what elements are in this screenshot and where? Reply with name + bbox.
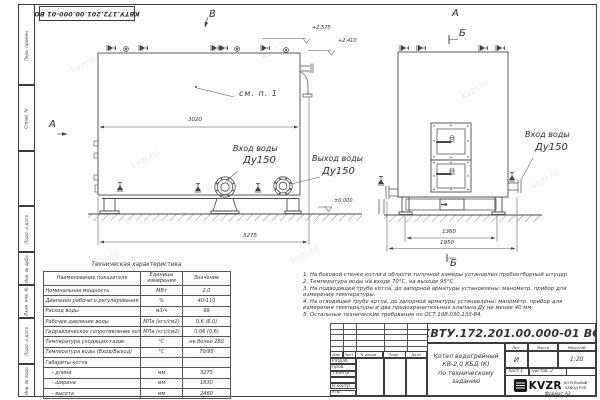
mass-value [528, 351, 558, 368]
spec-row: Рабочее давление водыМПа (кгс/см2)0,6 (6… [44, 316, 231, 326]
rev-col-list: Лист [343, 351, 356, 358]
product-title: Котел водогрейный КВ-2,0 КБД (К) по техн… [428, 353, 504, 386]
product-title-cell: Котел водогрейный КВ-2,0 КБД (К) по техн… [427, 343, 505, 396]
spec-row: Гидравлическое сопротивление котлаМПа (к… [44, 327, 231, 337]
spec-row: - длинамм3275 [44, 368, 231, 378]
scale-header: Масштаб [558, 343, 597, 351]
elevation-2575: +2.575 [312, 26, 331, 31]
lit-value: И [505, 351, 528, 368]
section-label-B-top: Б [459, 29, 466, 39]
spec-table: Наименование показателя Единицы измерени… [43, 271, 231, 399]
note-5: 5. Остальные технические требования по О… [303, 312, 575, 318]
dim-3020: 3020 [188, 118, 202, 124]
spec-row: Расход водым3/ч69 [44, 306, 231, 316]
front-top-fittings [107, 45, 288, 52]
water-outlet-nozzle [274, 177, 292, 195]
kvzr-logo-mark [514, 379, 527, 392]
front-annotations [57, 17, 320, 184]
note-3: 3. На подводящей трубе котла, до запорно… [303, 286, 575, 299]
spec-row: - ширинамм1830 [44, 378, 231, 388]
technical-notes: 1. На боковой стенке котла в области топ… [303, 272, 575, 319]
spec-header: Наименование показателя [44, 272, 141, 286]
section-label-B-bottom: Б [450, 259, 457, 269]
view-label-A-side: А [452, 9, 459, 19]
sig-utv: Утв. [330, 390, 356, 397]
spec-row: Номинальная мощностьМВт2,0 [44, 286, 231, 296]
rev-col-izm: Изм. [330, 351, 343, 358]
revision-table [330, 323, 428, 352]
dim-1950: 1950 [440, 241, 454, 247]
scale-value: 1:20 [558, 351, 597, 368]
spec-header: Значение [183, 272, 231, 286]
front-outlet-dn: Ду150 [322, 167, 355, 177]
sheet-number: 1 [520, 369, 523, 374]
mass-header: Масса [528, 343, 558, 351]
view-label-B: В [209, 10, 216, 20]
note-4: 4. На отводящей трубе котла, до запорной… [303, 299, 575, 312]
dim-3275: 3275 [243, 234, 257, 240]
front-inlet-label: Вход воды [233, 145, 278, 153]
doc-number-cell: КВТУ.172.201.00.000-01 ВО [427, 323, 596, 343]
spec-header: Единицы измерения [141, 272, 183, 286]
front-outlet-label: Выход воды [312, 155, 363, 163]
format-label: Формат А3 [545, 393, 571, 398]
dim-1360: 1360 [442, 230, 456, 236]
side-dimensions [387, 35, 533, 262]
doc-number: КВТУ.172.201.00.000-01 ВО [427, 327, 596, 340]
drawing-sheet: kvzr.ru kvzr.ru kvzr.ru kvzr.ru kvzr.ru … [0, 0, 600, 400]
view-arrow-B [205, 17, 208, 27]
company-name: КОТЕЛЬНЫЙ ЗАВОД РЭП [564, 381, 588, 390]
note-2: 2. Температура воды на входе 70°С, на вы… [303, 279, 575, 285]
elevation-2410: +2.410 [338, 39, 357, 44]
rev-col-ndokum: N докум. [355, 351, 383, 358]
sheets-total: 2 [550, 369, 553, 374]
ground-line-front [88, 214, 362, 221]
lit-header: Лит. [505, 343, 528, 351]
note-1: 1. На боковой стенке котла в области топ… [303, 272, 575, 278]
view-label-A-left: А [49, 120, 56, 130]
side-inlet-label: Вход воды [525, 131, 570, 139]
callout-see-note-1: см. п. 1 [239, 90, 278, 98]
spec-table-title: Техническая характеристика [43, 262, 230, 268]
spec-row: Температура воды (Вход/Выход)°С70/95 [44, 347, 231, 357]
front-view [94, 53, 313, 214]
spec-row: - высотамм2460 [44, 388, 231, 398]
rev-col-podp: Подп. [383, 351, 406, 358]
spec-row: Диапазон рабочего регулирования%40-110 [44, 296, 231, 306]
ground-line-side [384, 215, 542, 222]
spec-row: Габариты котла [44, 358, 231, 368]
spec-row: Температура уходящих газов°Сне более 280 [44, 337, 231, 347]
front-drain-valves [117, 183, 261, 193]
spec-header-row: Наименование показателя Единицы измерени… [44, 272, 231, 286]
side-inlet-dn: Ду150 [535, 143, 568, 153]
water-inlet-nozzle [215, 177, 235, 197]
front-inlet-dn: Ду150 [243, 156, 276, 166]
kvzr-logo-text: KVZR [529, 380, 562, 392]
title-block: Изм. Лист N докум. Подп. Дата Разраб. Пр… [330, 323, 596, 396]
elevation-zero: ±0.000 [334, 199, 353, 204]
side-view [379, 52, 521, 215]
rev-col-data: Дата [405, 351, 427, 358]
